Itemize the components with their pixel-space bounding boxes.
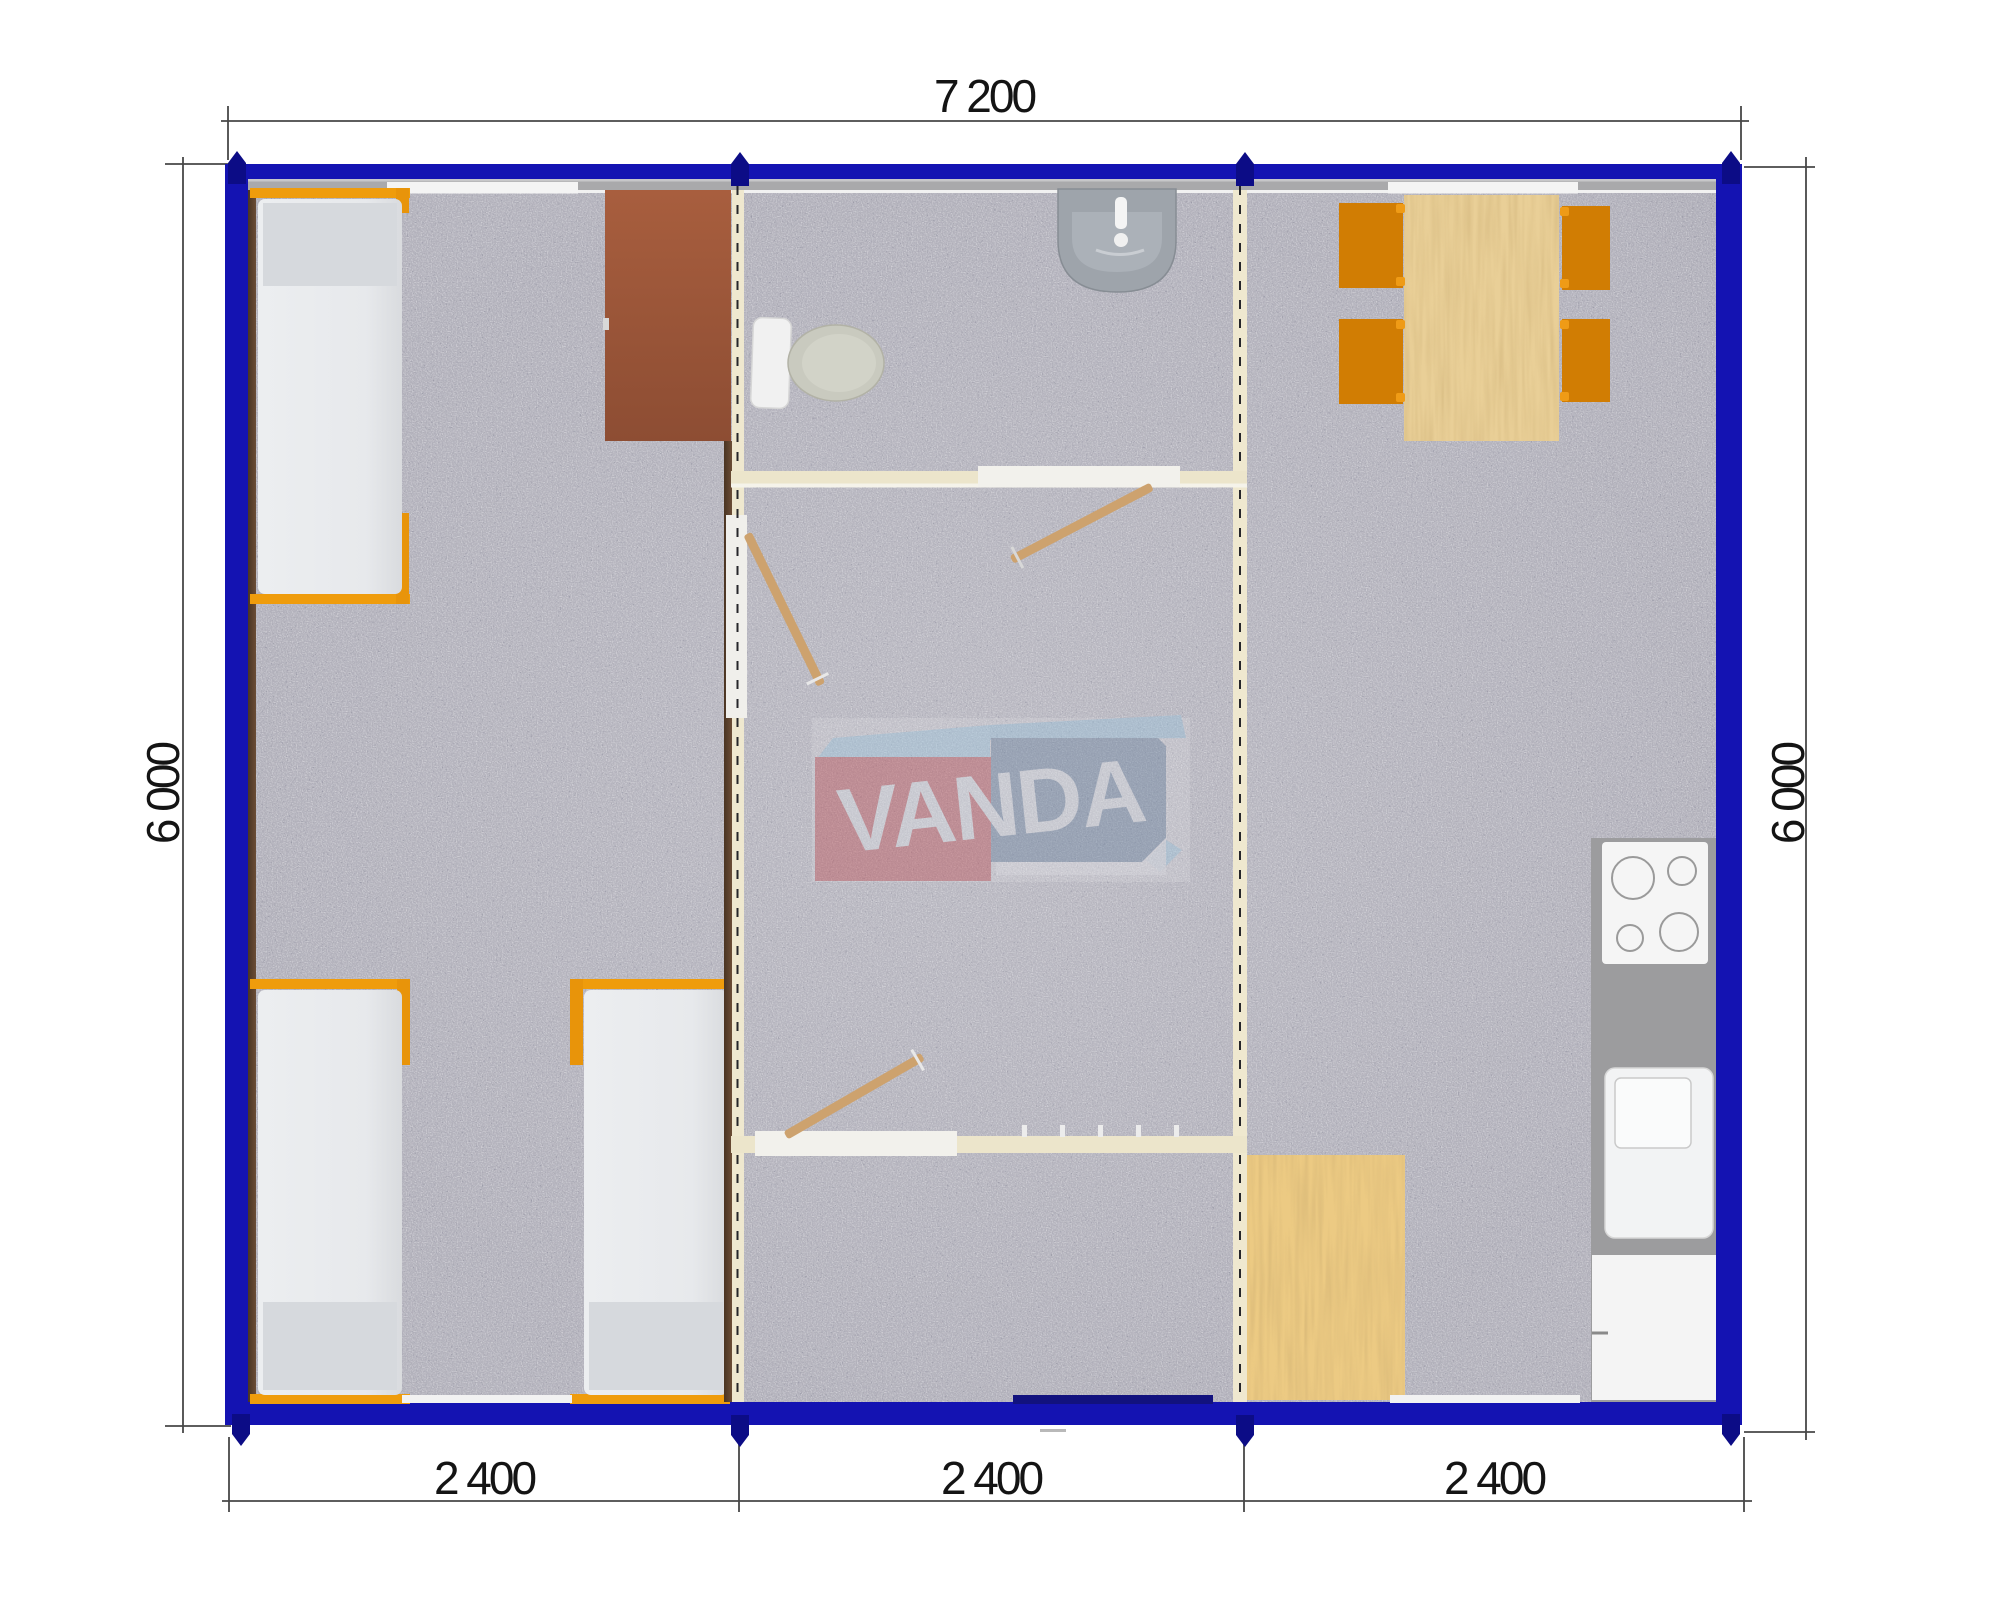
svg-text:2 400: 2 400 — [434, 1452, 536, 1504]
svg-text:2 400: 2 400 — [1444, 1452, 1546, 1504]
svg-text:6 000: 6 000 — [1762, 743, 1814, 845]
svg-text:7 200: 7 200 — [934, 70, 1036, 122]
svg-text:2 400: 2 400 — [941, 1452, 1043, 1504]
svg-text:6 000: 6 000 — [137, 743, 189, 845]
